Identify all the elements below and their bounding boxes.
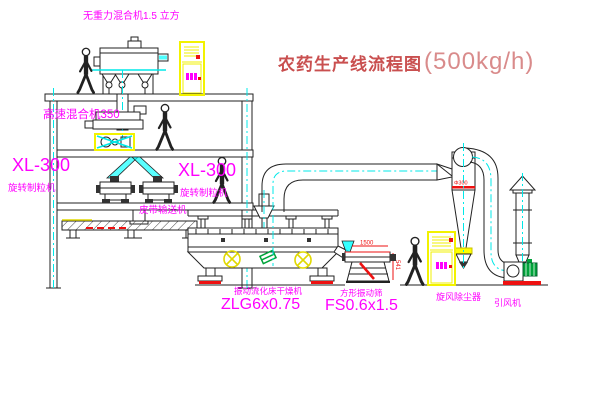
flow-diagram-canvas: Φ300 bbox=[0, 0, 600, 403]
dryer-legs bbox=[198, 268, 334, 284]
worker-figure-1 bbox=[78, 48, 94, 92]
zero-gravity-mixer bbox=[92, 37, 168, 94]
label-fan: 引风机 bbox=[494, 299, 521, 308]
diagram-title: 农药生产线流程图 (500kg/h) bbox=[278, 48, 534, 76]
label-high-speed-mixer: 高速混合机350 bbox=[43, 110, 120, 122]
granulator-left-machine bbox=[96, 176, 135, 203]
sieve-height-dim: 541 bbox=[394, 260, 400, 271]
sieve-length-dim: 1500 bbox=[360, 241, 374, 247]
diagram-title-text: 农药生产线流程图 bbox=[278, 50, 422, 75]
label-cyclone: 旋风除尘器 bbox=[436, 293, 481, 302]
worker-figure-2 bbox=[157, 104, 173, 149]
label-zero-gravity-mixer: 无重力混合机1.5 立方 bbox=[83, 12, 180, 22]
diagram-title-capacity: (500kg/h) bbox=[424, 48, 534, 76]
worker-figure-4 bbox=[406, 237, 423, 284]
fan-base bbox=[503, 281, 541, 285]
vibrating-sieve-machine: 1500 541 bbox=[342, 241, 400, 283]
dryer-feed-funnel bbox=[254, 190, 274, 232]
fan-machine bbox=[503, 259, 541, 285]
label-sieve-model: FS0.6x1.5 bbox=[325, 298, 398, 314]
label-granulator-left-name: 旋转制粒机 bbox=[8, 184, 56, 194]
mixer-discharge bbox=[102, 74, 152, 94]
label-granulator-right-name: 旋转制粒机 bbox=[180, 189, 228, 199]
label-dryer-model: ZLG6x0.75 bbox=[221, 297, 300, 313]
mixer-gearbox bbox=[95, 134, 134, 150]
cyclone-dim-text: Φ300 bbox=[454, 181, 468, 187]
y-duct bbox=[107, 157, 163, 178]
belt-conveyor-machine bbox=[62, 220, 197, 238]
label-granulator-left-model: XL-300 bbox=[12, 156, 70, 174]
granulator-right-machine bbox=[139, 176, 178, 203]
exhaust-stack bbox=[510, 173, 535, 265]
label-belt-conveyor: 皮带输送机 bbox=[139, 206, 187, 216]
control-cabinet-2 bbox=[428, 232, 455, 285]
label-granulator-right-model: XL-300 bbox=[178, 161, 236, 179]
label-dryer-name: 振动流化床干燥机 bbox=[234, 287, 302, 296]
exhaust-duct bbox=[262, 164, 458, 212]
control-cabinet-1 bbox=[180, 42, 204, 95]
